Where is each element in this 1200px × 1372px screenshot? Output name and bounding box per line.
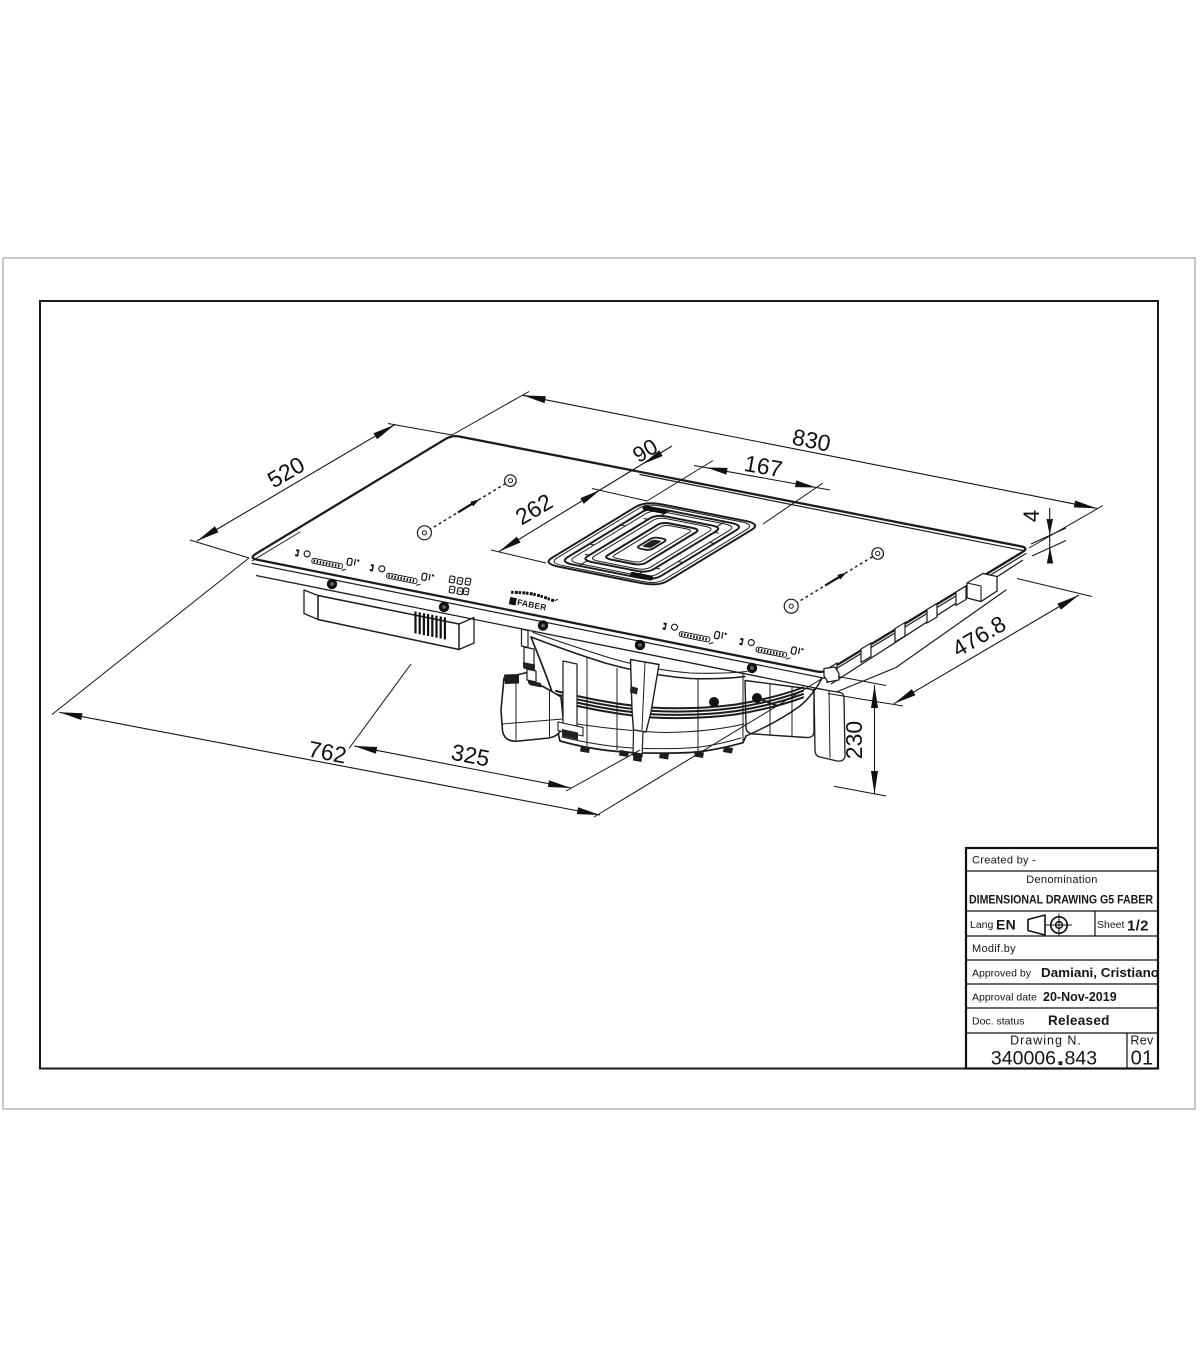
svg-text:1/2: 1/2 bbox=[1127, 918, 1149, 935]
svg-text:230: 230 bbox=[841, 721, 867, 759]
svg-text:4: 4 bbox=[1019, 510, 1044, 522]
svg-text:340006: 340006 bbox=[991, 1048, 1056, 1070]
svg-text:Doc. status: Doc. status bbox=[972, 1016, 1025, 1028]
svg-text:01: 01 bbox=[1131, 1048, 1154, 1070]
svg-text:Approved by: Approved by bbox=[972, 968, 1032, 980]
svg-text:EN: EN bbox=[996, 917, 1016, 933]
svg-text:Lang: Lang bbox=[970, 919, 994, 931]
svg-text:843: 843 bbox=[1065, 1048, 1098, 1070]
svg-text:Sheet: Sheet bbox=[1097, 919, 1125, 931]
svg-text:DIMENSIONAL DRAWING G5 FABER: DIMENSIONAL DRAWING G5 FABER bbox=[969, 893, 1153, 907]
svg-text:Created by -: Created by - bbox=[972, 855, 1036, 867]
svg-text:20-Nov-2019: 20-Nov-2019 bbox=[1043, 990, 1117, 1004]
svg-text:Damiani, Cristiano: Damiani, Cristiano bbox=[1041, 966, 1159, 980]
svg-text:Drawing N.: Drawing N. bbox=[1010, 1034, 1082, 1048]
svg-text:Approval date: Approval date bbox=[972, 992, 1037, 1004]
svg-text:Modif.by: Modif.by bbox=[972, 943, 1016, 955]
svg-text:Denomination: Denomination bbox=[1026, 874, 1097, 886]
svg-text:Rev: Rev bbox=[1130, 1034, 1154, 1048]
svg-text:Released: Released bbox=[1048, 1013, 1110, 1028]
